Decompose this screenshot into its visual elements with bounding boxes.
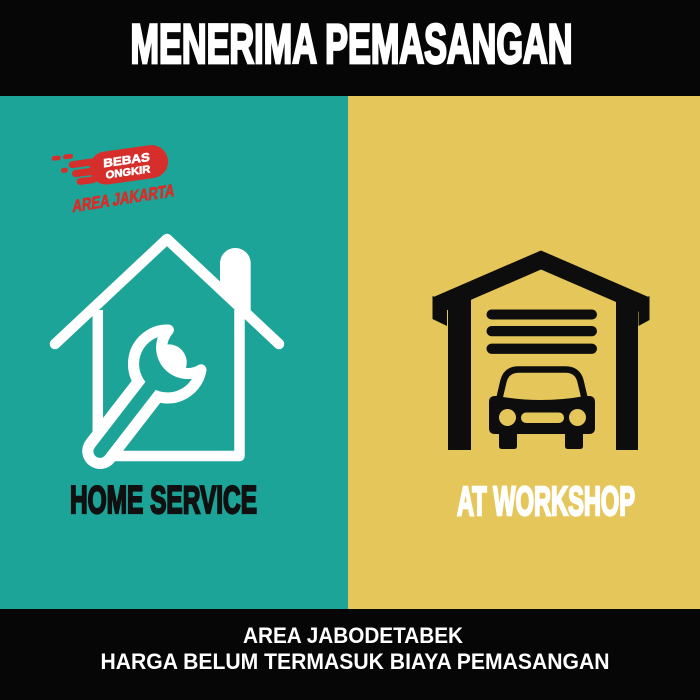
svg-text:HARGA BELUM TERMASUK BIAYA PEM: HARGA BELUM TERMASUK BIAYA PEMASANGAN	[101, 649, 610, 674]
svg-text:MENERIMA PEMASANGAN: MENERIMA PEMASANGAN	[131, 13, 573, 75]
svg-text:HOME SERVICE: HOME SERVICE	[70, 479, 257, 522]
svg-text:AT WORKSHOP: AT WORKSHOP	[457, 478, 635, 524]
svg-text:AREA JABODETABEK: AREA JABODETABEK	[243, 623, 463, 648]
